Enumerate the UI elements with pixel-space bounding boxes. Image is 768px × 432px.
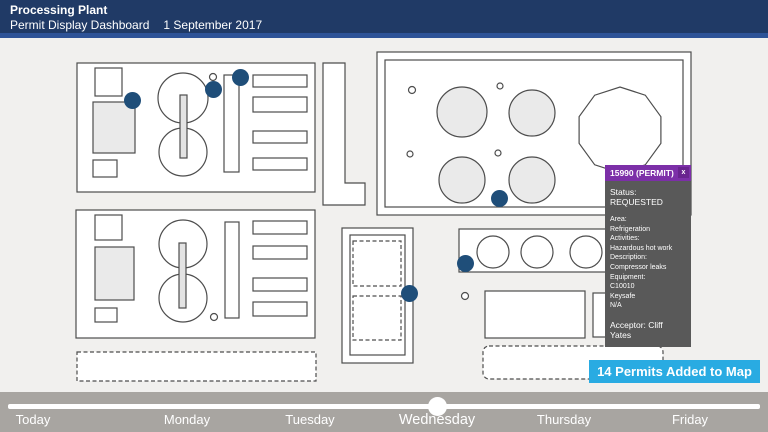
permit-marker[interactable] (491, 190, 508, 207)
building-bottom-left (76, 210, 315, 338)
timeline-day-tuesday[interactable]: Tuesday (285, 412, 334, 427)
dashboard-name: Permit Display Dashboard (10, 18, 149, 32)
permit-marker[interactable] (401, 285, 418, 302)
l-shaped-structure (323, 63, 365, 205)
timeline-day-friday[interactable]: Friday (672, 412, 708, 427)
permit-acceptor: Acceptor: Cliff Yates (610, 320, 686, 340)
timeline: Today Monday Tuesday Wednesday Thursday … (0, 392, 768, 432)
permits-added-banner: 14 Permits Added to Map (589, 360, 760, 383)
decagon-tank (579, 87, 661, 173)
timeline-day-today[interactable]: Today (16, 412, 51, 427)
page-subtitle: Permit Display Dashboard1 September 2017 (10, 18, 262, 32)
permit-marker[interactable] (205, 81, 222, 98)
report-date: 1 September 2017 (163, 18, 262, 32)
timeline-track[interactable] (8, 404, 760, 409)
permit-marker[interactable] (457, 255, 474, 272)
permit-marker[interactable] (124, 92, 141, 109)
dashed-zone-left (77, 352, 316, 381)
building-top-left (77, 63, 315, 192)
permit-details: Area: Refrigeration Activities: Hazardou… (610, 215, 686, 311)
permit-tooltip: 15990 (PERMIT) x Status: REQUESTED Area:… (605, 165, 691, 347)
permit-tooltip-body: Status: REQUESTED Area: Refrigeration Ac… (605, 181, 691, 347)
permit-id: 15990 (PERMIT) (610, 168, 674, 178)
timeline-day-wednesday[interactable]: Wednesday (399, 412, 475, 428)
permit-marker[interactable] (232, 69, 249, 86)
header-accent-strip (0, 33, 768, 38)
permit-tooltip-header: 15990 (PERMIT) x (605, 165, 691, 181)
close-icon[interactable]: x (678, 167, 689, 178)
timeline-day-monday[interactable]: Monday (164, 412, 210, 427)
timeline-day-thursday[interactable]: Thursday (537, 412, 591, 427)
permit-dashboard: Processing Plant Permit Display Dashboar… (0, 0, 768, 432)
page-title: Processing Plant (10, 3, 107, 17)
header: Processing Plant Permit Display Dashboar… (0, 0, 768, 33)
permit-status: Status: REQUESTED (610, 187, 686, 207)
